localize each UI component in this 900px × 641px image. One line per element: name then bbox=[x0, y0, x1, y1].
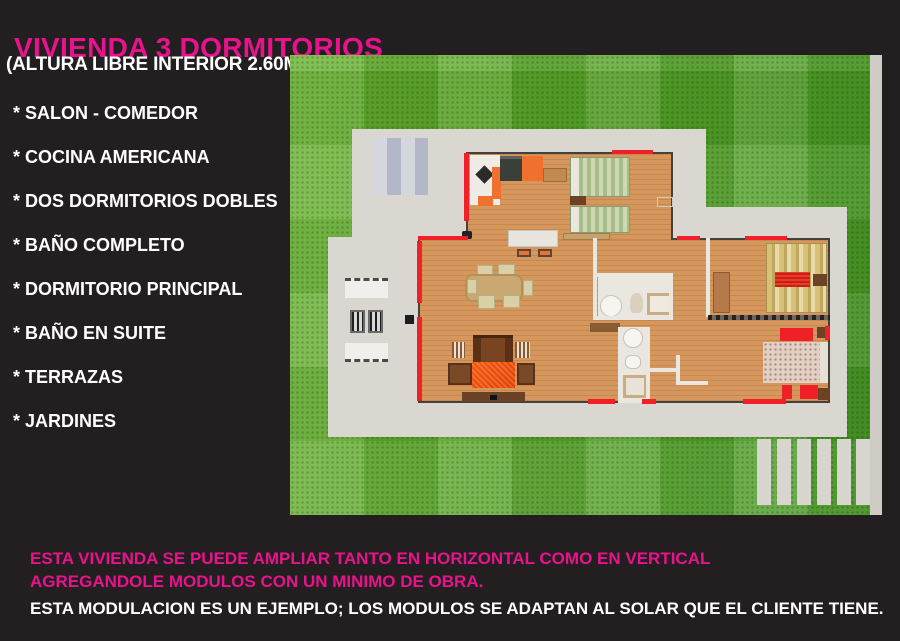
toilet bbox=[625, 355, 641, 369]
nightstand-1 bbox=[570, 196, 586, 205]
stepping-stone bbox=[837, 439, 851, 505]
wall-closet3-horizontal bbox=[676, 381, 708, 385]
feature-terrazas: * TERRAZAS bbox=[13, 368, 278, 386]
stepping-stone bbox=[777, 439, 791, 505]
bed3-foot-table bbox=[818, 388, 830, 400]
wall-bath1-right bbox=[669, 273, 673, 320]
stepping-stone bbox=[797, 439, 811, 505]
armchair-right bbox=[517, 363, 535, 385]
bed-1-pillow bbox=[571, 158, 579, 196]
door-marker-bottom-1 bbox=[588, 399, 615, 404]
kitchen-island bbox=[508, 230, 558, 247]
sofa bbox=[473, 335, 513, 362]
feature-dormitorio-principal: * DORMITORIO PRINCIPAL bbox=[13, 280, 278, 298]
hall-closet bbox=[713, 272, 730, 313]
feature-jardines: * JARDINES bbox=[13, 412, 278, 430]
bath-figure bbox=[630, 293, 643, 313]
door-marker-bottom-3 bbox=[743, 399, 786, 404]
footer-line-2: AGREGANDOLE MODULOS CON UN MINIMO DE OBR… bbox=[30, 572, 483, 592]
dining-chair bbox=[503, 295, 520, 308]
stepping-stone bbox=[856, 439, 870, 505]
wall-bath2-left bbox=[618, 327, 622, 403]
bed3-side-runner bbox=[820, 342, 828, 383]
garden-bench-top bbox=[345, 278, 388, 298]
dining-chair bbox=[478, 295, 495, 309]
stepping-stone bbox=[817, 439, 831, 505]
wall-hall-horizontal bbox=[646, 368, 676, 372]
bar-stool-1 bbox=[517, 249, 531, 257]
kitchen-stove bbox=[500, 156, 522, 181]
wall-bedroom2-left bbox=[706, 238, 710, 317]
wall-bath1-top bbox=[595, 273, 673, 277]
glass-canopy bbox=[373, 138, 428, 195]
bed-double-1 bbox=[570, 157, 630, 197]
door-marker-top-3 bbox=[745, 236, 787, 240]
door-marker-bottom-2 bbox=[642, 399, 656, 404]
bed-double-2 bbox=[570, 206, 630, 233]
feature-bano-en-suite: * BAÑO EN SUITE bbox=[13, 324, 278, 342]
curtain-panel-left bbox=[452, 342, 465, 358]
wall-bedrooms-divider bbox=[708, 315, 830, 320]
window-shutter-right bbox=[368, 310, 383, 333]
dining-chair bbox=[523, 280, 533, 296]
bed-principal-red-rug bbox=[775, 272, 810, 287]
garden-path bbox=[870, 55, 882, 515]
kitchen-counter-wood bbox=[543, 168, 567, 182]
stepping-stone bbox=[757, 439, 771, 505]
armchair-left bbox=[448, 363, 472, 385]
floorplan-image bbox=[290, 55, 882, 515]
nightstand-principal bbox=[813, 274, 827, 286]
dining-chair bbox=[467, 279, 477, 294]
washbasin-round bbox=[623, 328, 643, 348]
counter-ledge bbox=[563, 233, 610, 240]
feature-cocina-americana: * COCINA AMERICANA bbox=[13, 148, 278, 166]
door-marker-right bbox=[825, 326, 830, 340]
shower-tray bbox=[623, 375, 647, 398]
bed3-headboard-red bbox=[780, 328, 813, 341]
kitchen-counter-orange2 bbox=[522, 156, 543, 181]
bathtub-round bbox=[600, 295, 622, 317]
door-marker-top-2 bbox=[677, 236, 700, 240]
door-marker-upper-left bbox=[464, 153, 469, 221]
door-marker-upper-top bbox=[612, 150, 653, 154]
door-marker-left-2 bbox=[417, 317, 422, 401]
poster: VIVIENDA 3 DORMITORIOS (ALTURA LIBRE INT… bbox=[0, 0, 900, 641]
bath-shelf bbox=[590, 323, 620, 332]
wall-living-divider bbox=[593, 238, 597, 320]
wall-hall-vertical bbox=[646, 368, 650, 403]
door-marker-top-1 bbox=[418, 236, 468, 240]
bar-stool-2 bbox=[538, 249, 552, 257]
bed3-foot-red-2 bbox=[800, 385, 818, 399]
door-marker-left-1 bbox=[417, 241, 422, 303]
footer-line-3: ESTA MODULACION ES UN EJEMPLO; LOS MODUL… bbox=[30, 599, 884, 619]
closet-lines bbox=[657, 197, 673, 207]
garden-bench-bottom bbox=[345, 343, 388, 362]
footer-line-1: ESTA VIVIENDA SE PUEDE AMPLIAR TANTO EN … bbox=[30, 549, 710, 569]
feature-salon-comedor: * SALON - COMEDOR bbox=[13, 104, 278, 122]
feature-dormitorios-dobles: * DOS DORMITORIOS DOBLES bbox=[13, 192, 278, 210]
window-shutter-left bbox=[350, 310, 365, 333]
tv-screen bbox=[490, 395, 497, 400]
feature-bano-completo: * BAÑO COMPLETO bbox=[13, 236, 278, 254]
entry-door-handle bbox=[405, 315, 414, 324]
curtain-panel-right bbox=[515, 342, 530, 358]
subtitle: (ALTURA LIBRE INTERIOR 2.60M.) bbox=[6, 54, 310, 76]
living-rug bbox=[472, 362, 515, 388]
bed3-foot-red-1 bbox=[782, 385, 792, 399]
feature-list: * SALON - COMEDOR * COCINA AMERICANA * D… bbox=[13, 104, 278, 456]
kitchen-counter-orange-low bbox=[478, 196, 493, 206]
bed3-mattress bbox=[763, 342, 820, 383]
bed-2-pillow bbox=[571, 207, 579, 232]
wall-bath1-bottom bbox=[595, 316, 673, 320]
